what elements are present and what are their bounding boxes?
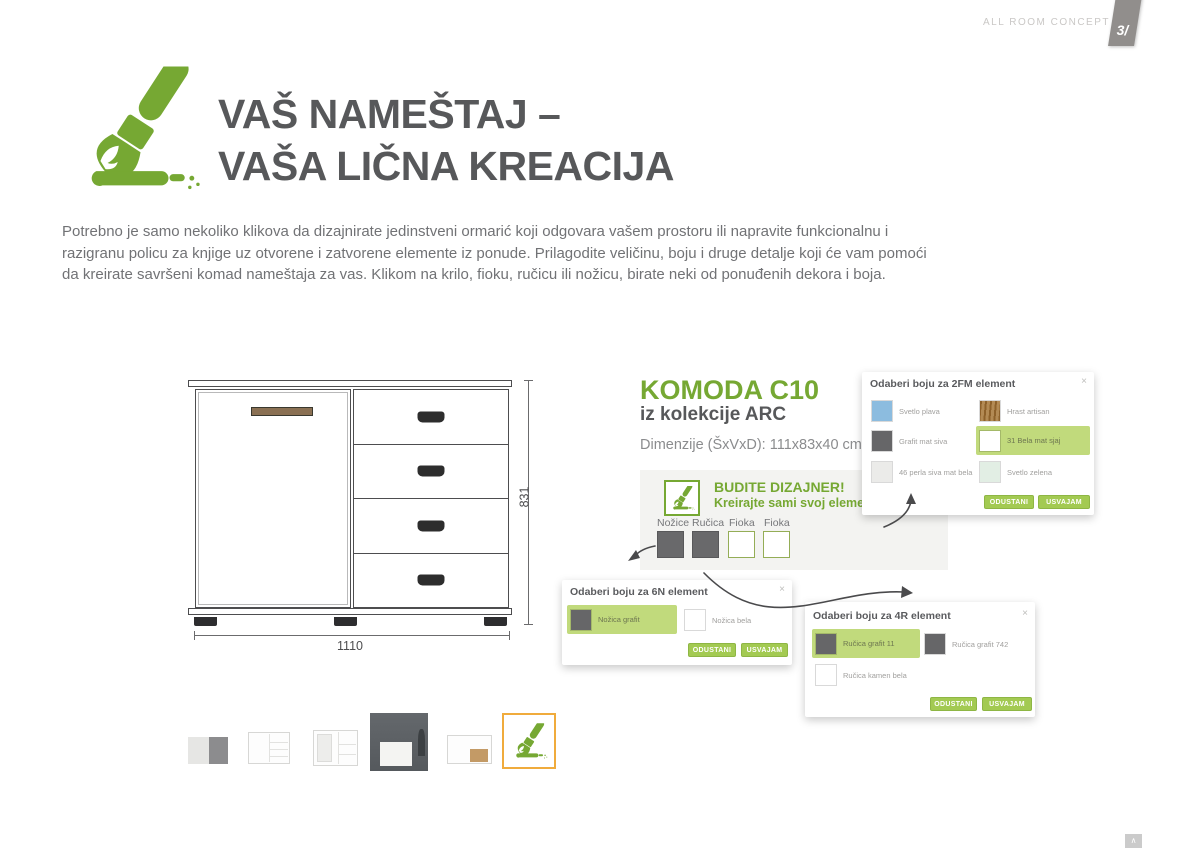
- close-icon[interactable]: ×: [1022, 608, 1028, 619]
- swatch-label: Nožica bela: [712, 616, 751, 625]
- designer-subheading: Kreirajte sami svoj element: [714, 496, 876, 510]
- page-title-line2: VAŠA LIČNA KREACIJA: [218, 140, 674, 192]
- color-swatch: [980, 431, 1000, 451]
- swatch-label: 31 Bela mat sjaj: [1007, 436, 1060, 445]
- cancel-button[interactable]: ODUSTANI: [984, 495, 1034, 509]
- drawing-foot: [334, 617, 357, 626]
- swatch-option-selected[interactable]: 31 Bela mat sjaj: [976, 426, 1090, 455]
- drawer-handle: [418, 575, 445, 586]
- part-swatch-fioka2[interactable]: [763, 531, 790, 558]
- drawing-drawer: [354, 445, 508, 500]
- swatch-option[interactable]: Ručica grafit 742: [921, 631, 1031, 657]
- swatch-option[interactable]: Ručica kamen bela: [812, 662, 920, 688]
- dialog-2fm: Odaberi boju za 2FM element × Svetlo pla…: [862, 372, 1094, 515]
- swatch-label: Svetlo zelena: [1007, 468, 1052, 477]
- drawer-handle: [418, 466, 445, 477]
- part-label-nozice: Nožice: [657, 517, 689, 529]
- paintbrush-icon: [510, 723, 548, 760]
- thumbnail-white-wood-dresser[interactable]: [447, 735, 492, 764]
- drawing-drawer-column: [353, 389, 509, 608]
- drawing-foot: [484, 617, 507, 626]
- brand-text: ALL ROOM CONCEPT: [940, 17, 1110, 28]
- drawing-drawer: [354, 554, 508, 608]
- thumbnail-designer-selected[interactable]: [502, 713, 556, 769]
- part-swatch-fioka1[interactable]: [728, 531, 755, 558]
- part-swatch-rucica[interactable]: [692, 531, 719, 558]
- swatch-option[interactable]: Grafit mat siva: [868, 428, 974, 454]
- drawing-bottom-board: [188, 608, 512, 615]
- swatch-option[interactable]: Hrast artisan: [976, 398, 1090, 424]
- color-swatch: [980, 401, 1000, 421]
- drawing-door: [195, 389, 351, 608]
- drawer-handle: [418, 520, 445, 531]
- swatch-option[interactable]: Svetlo plava: [868, 398, 974, 424]
- thumbnail-image: [370, 713, 428, 771]
- thumbnail-wood-drawer: [470, 749, 488, 762]
- swatch-label: Ručica grafit 742: [952, 640, 1008, 649]
- cancel-button[interactable]: ODUSTANI: [930, 697, 977, 711]
- product-collection: iz kolekcije ARC: [640, 404, 786, 426]
- dialog-4r-title: Odaberi boju za 4R element: [813, 610, 951, 622]
- swatch-option[interactable]: Nožica bela: [681, 607, 787, 633]
- swatch-option[interactable]: 46 perla siva mat bela: [868, 459, 974, 485]
- swatch-label: Nožica grafit: [598, 615, 640, 624]
- drawing-door-inner-line: [198, 392, 348, 605]
- paintbrush-icon: [70, 66, 202, 194]
- page-number-ribbon: 3/: [1108, 0, 1142, 46]
- confirm-button[interactable]: USVAJAM: [741, 643, 788, 657]
- scroll-top-button[interactable]: ∧: [1125, 834, 1142, 848]
- paintbrush-mini-icon: [664, 480, 700, 516]
- drawing-drawer: [354, 499, 508, 554]
- swatch-label: Hrast artisan: [1007, 407, 1050, 416]
- page-number: 3/: [1117, 22, 1129, 38]
- part-swatch-nozice[interactable]: [657, 531, 684, 558]
- drawing-foot: [194, 617, 217, 626]
- swatch-label: Ručica grafit 11: [843, 639, 895, 648]
- width-dimension-label: 1110: [188, 639, 512, 653]
- drawer-handle: [418, 411, 445, 422]
- color-swatch: [872, 431, 892, 451]
- swatch-label: Ručica kamen bela: [843, 671, 907, 680]
- swatch-option[interactable]: Svetlo zelena: [976, 459, 1090, 485]
- cancel-button[interactable]: ODUSTANI: [688, 643, 736, 657]
- swatch-label: Grafit mat siva: [899, 437, 947, 446]
- dialog-6n: Odaberi boju za 6N element × Nožica graf…: [562, 580, 792, 665]
- dialog-4r: Odaberi boju za 4R element × Ručica graf…: [805, 602, 1035, 717]
- drawing-door-handle: [251, 407, 313, 416]
- confirm-button[interactable]: USVAJAM: [982, 697, 1032, 711]
- color-swatch: [925, 634, 945, 654]
- color-swatch: [571, 610, 591, 630]
- color-swatch: [980, 462, 1000, 482]
- color-swatch: [816, 634, 836, 654]
- part-label-fioka2: Fioka: [764, 517, 790, 529]
- swatch-label: 46 perla siva mat bela: [899, 468, 972, 477]
- dialog-6n-title: Odaberi boju za 6N element: [570, 586, 708, 598]
- technical-drawing: 1110 831: [188, 378, 548, 658]
- thumbnail-white-dresser-open-door[interactable]: [313, 730, 358, 766]
- drawing-top-board: [188, 380, 512, 387]
- thumbnail-white-dresser-open-drawers[interactable]: [248, 732, 290, 764]
- width-dimension-line: [194, 635, 510, 636]
- close-icon[interactable]: ×: [1081, 376, 1087, 387]
- swatch-option-selected[interactable]: Ručica grafit 11: [812, 629, 920, 658]
- dialog-2fm-title: Odaberi boju za 2FM element: [870, 378, 1015, 390]
- confirm-button[interactable]: USVAJAM: [1038, 495, 1090, 509]
- close-icon[interactable]: ×: [779, 584, 785, 595]
- page-title: VAŠ NAMEŠTAJ – VAŠA LIČNA KREACIJA: [218, 88, 674, 192]
- drawing-drawer: [354, 390, 508, 445]
- intro-paragraph: Potrebno je samo nekoliko klikova da diz…: [62, 221, 934, 286]
- thumbnail-gray-dresser[interactable]: [188, 737, 228, 764]
- page-title-line1: VAŠ NAMEŠTAJ –: [218, 88, 674, 140]
- height-dimension-label: 831: [517, 487, 531, 508]
- thumbnail-room-photo[interactable]: [370, 713, 428, 771]
- thumbnail-image: [188, 737, 228, 764]
- designer-heading: BUDITE DIZAJNER!: [714, 479, 845, 495]
- color-swatch: [872, 401, 892, 421]
- swatch-option-selected[interactable]: Nožica grafit: [567, 605, 677, 634]
- part-label-rucica: Ručica: [692, 517, 724, 529]
- color-swatch: [685, 610, 705, 630]
- swatch-label: Svetlo plava: [899, 407, 940, 416]
- color-swatch: [872, 462, 892, 482]
- product-dimensions: Dimenzije (ŠxVxD): 111x83x40 cm: [640, 437, 862, 453]
- part-label-fioka1: Fioka: [729, 517, 755, 529]
- product-name: KOMODA C10: [640, 375, 819, 406]
- color-swatch: [816, 665, 836, 685]
